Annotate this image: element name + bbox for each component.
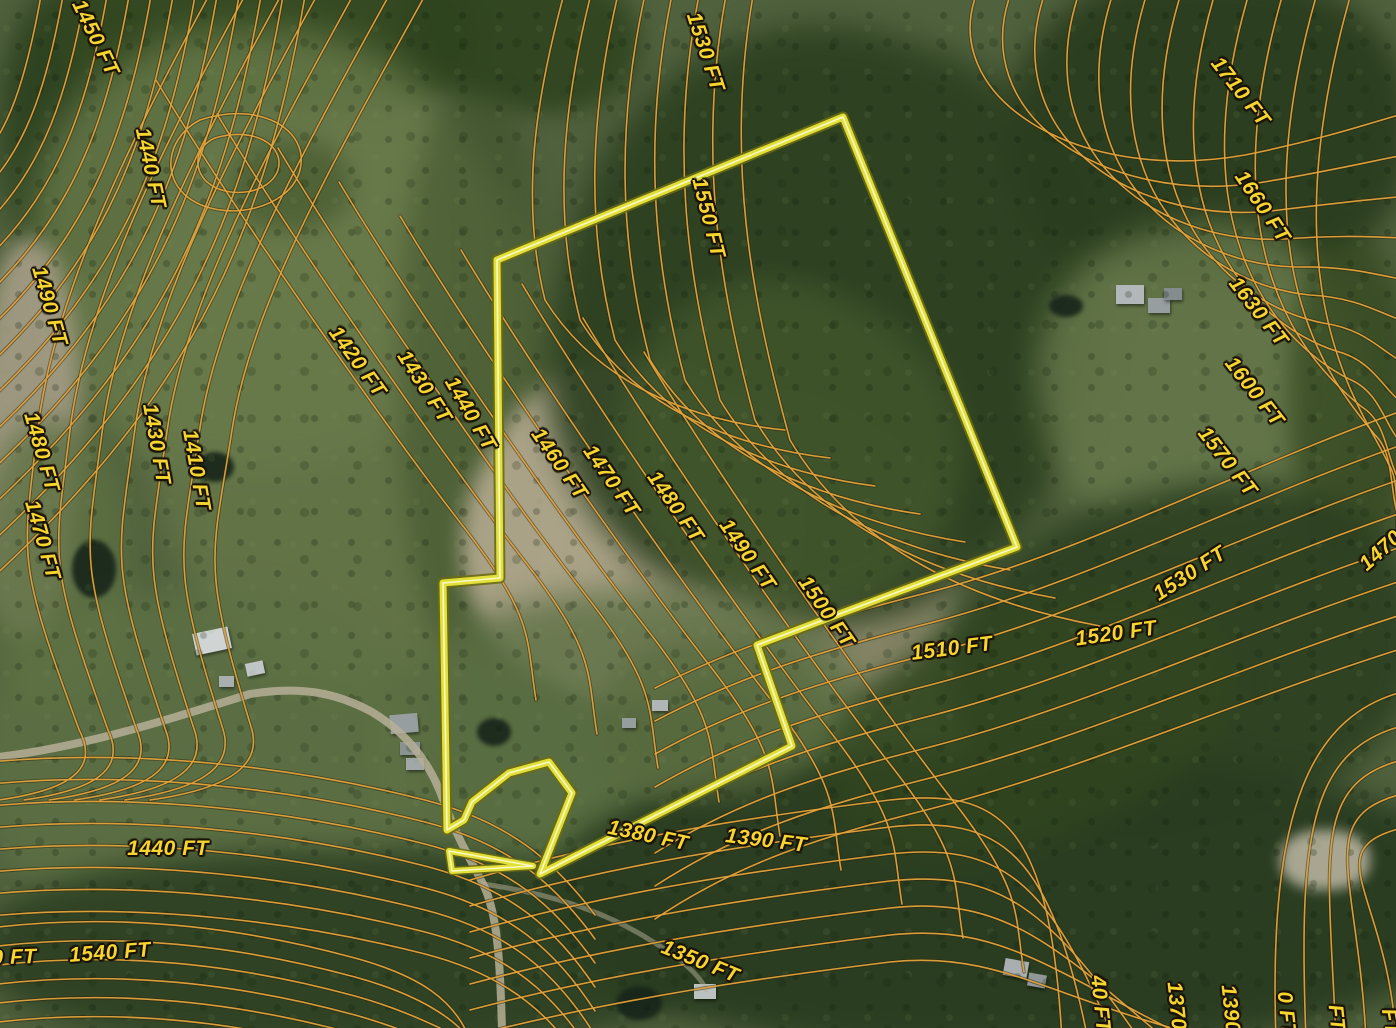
parcel-outline-path [443,117,1017,874]
contour-elevation-label: 1390 [1216,984,1245,1028]
contour-elevation-label: FT [1323,1003,1350,1028]
contour-elevation-label: 1440 FT [127,837,209,861]
parcel-boundary [443,117,1017,874]
contour-elevation-label: 1370 [1162,981,1191,1028]
contour-and-parcel-layer [0,0,1396,1028]
contour-elevation-label: 0 FT [1272,990,1301,1028]
contour-elevation-label: 50 FT [0,945,37,971]
parcel-outline-path [443,117,1017,874]
satellite-topo-map[interactable]: 1450 FT1440 FT1530 FT1550 FT1710 FT1660 … [0,0,1396,1028]
contour-lines [0,0,1396,1028]
parcel-outline-path [443,117,1017,874]
contour-elevation-label: FT [1376,1007,1396,1028]
